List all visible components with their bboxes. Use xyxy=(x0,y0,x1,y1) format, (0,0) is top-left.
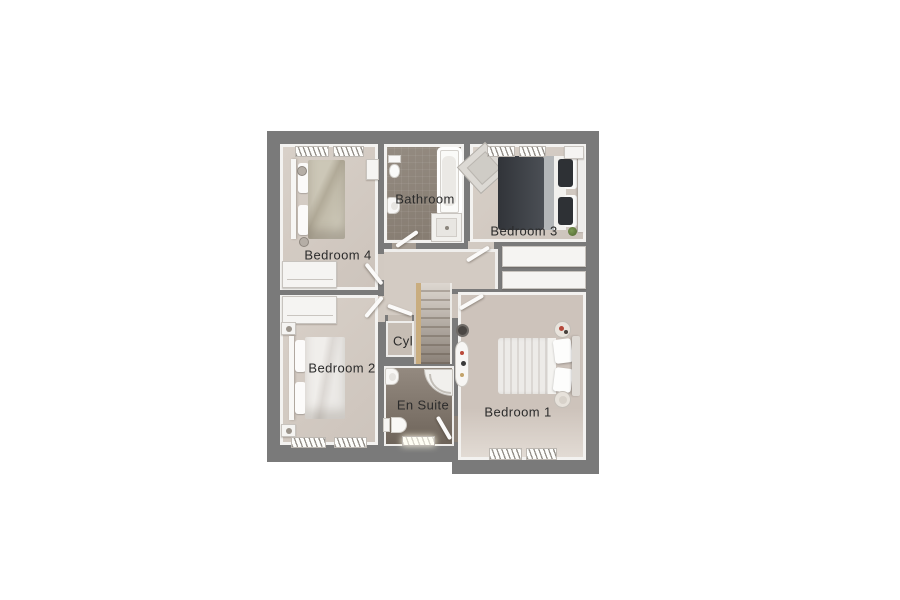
room-label-bedroom3: Bedroom 3 xyxy=(490,224,557,239)
round-table-top-item2 xyxy=(564,330,568,334)
shelf-bedroom3 xyxy=(564,146,584,159)
bed1-pillow-top xyxy=(553,338,574,364)
sink-ensuite xyxy=(385,368,399,385)
window-ensuite xyxy=(402,436,435,446)
bed1-headboard xyxy=(572,336,580,396)
window-bedroom4-left xyxy=(295,146,329,157)
dresser-item-tan xyxy=(460,373,464,377)
plant-bedroom3 xyxy=(568,227,577,236)
bed3-pillow-dark-top xyxy=(558,159,573,187)
round-table-bedroom1-top xyxy=(554,321,571,338)
stool-bedroom1 xyxy=(456,324,469,337)
room-label-bedroom1: Bedroom 1 xyxy=(484,405,551,420)
stool-bedroom4-top xyxy=(297,166,307,176)
bed-bedroom1 xyxy=(498,334,580,398)
bedside-bedroom2-bottom xyxy=(281,424,296,437)
round-table-bottom-inner xyxy=(559,396,567,404)
bed4-headboard xyxy=(291,159,296,239)
shower-bathroom xyxy=(431,213,462,242)
room-label-bathroom: Bathroom xyxy=(395,192,455,207)
stool-bedroom4-bottom xyxy=(299,237,309,247)
staircase xyxy=(421,283,452,364)
toilet-ensuite xyxy=(383,417,407,434)
bed1-pillow-bottom xyxy=(553,367,574,393)
dresser-item-red xyxy=(460,351,464,355)
window-bedroom2-right xyxy=(334,437,367,448)
dresser-item-dark xyxy=(461,361,466,366)
bed3-headboard xyxy=(578,154,584,232)
bed3-duvet xyxy=(498,156,544,230)
shower-bathroom-drain xyxy=(445,226,449,230)
toilet-bathroom xyxy=(388,155,401,179)
wardrobe2-drawer-line xyxy=(287,315,333,316)
window-bedroom2-left xyxy=(291,437,326,448)
wardrobe-bedroom4 xyxy=(282,261,337,288)
window-bedroom4-right xyxy=(333,146,364,157)
toilet-bathroom-cistern xyxy=(388,155,401,163)
toilet-ensuite-bowl xyxy=(391,417,407,433)
room-label-bedroom2: Bedroom 2 xyxy=(308,361,375,376)
wardrobe-bedroom2 xyxy=(282,296,337,324)
bed2-headboard xyxy=(289,336,294,420)
wardrobe-bedroom3-builtin xyxy=(502,246,586,267)
lamp-bedroom2-top xyxy=(286,326,292,332)
room-label-ensuite: En Suite xyxy=(397,398,449,413)
bed2-duvet xyxy=(305,337,345,419)
room-label-bedroom4: Bedroom 4 xyxy=(304,248,371,263)
bed1-duvet-ribbed xyxy=(498,338,550,394)
room-label-cyl: Cyl xyxy=(393,334,413,349)
bed3-pillow-dark-bottom xyxy=(558,197,573,225)
wardrobe4-drawer-line xyxy=(287,279,333,280)
bed3-runner-stripe xyxy=(544,156,554,230)
window-bedroom1-left xyxy=(489,448,522,460)
window-bedroom3-left xyxy=(487,146,515,157)
toilet-bathroom-bowl xyxy=(389,164,400,178)
bed4-duvet xyxy=(308,160,345,239)
toilet-ensuite-cistern xyxy=(383,418,390,432)
round-table-bedroom1-bottom xyxy=(554,391,571,408)
dressing-table-bedroom1 xyxy=(455,341,469,387)
sink-ensuite-basin xyxy=(389,373,396,381)
window-bedroom3-right xyxy=(519,146,546,157)
wardrobe-bedroom1-builtin xyxy=(502,271,586,289)
floorplan-canvas: Bathroom Bedroom 3 Bedroom 4 Cyl Bedroom… xyxy=(0,0,900,600)
radiator-bedroom4 xyxy=(366,159,379,180)
lamp-bedroom2-bottom xyxy=(286,428,292,434)
bed-bedroom2 xyxy=(289,334,345,422)
window-bedroom1-right xyxy=(526,448,557,460)
